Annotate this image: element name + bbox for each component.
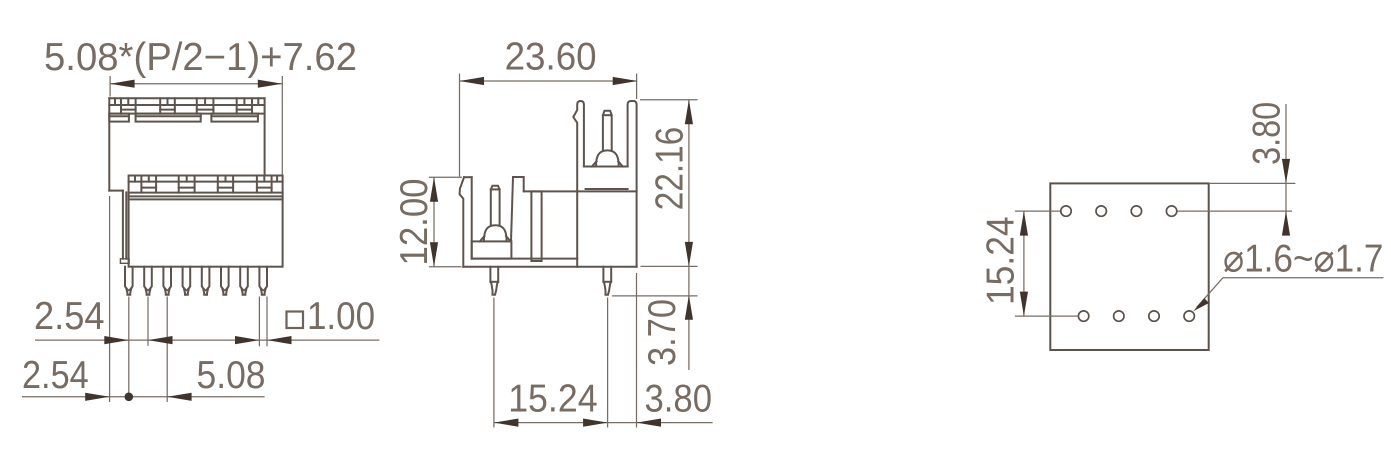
- svg-text:2.54: 2.54: [34, 295, 105, 338]
- svg-text:3.70: 3.70: [641, 299, 684, 366]
- svg-text:⌀1.6~⌀1.7: ⌀1.6~⌀1.7: [1223, 238, 1383, 281]
- svg-text:15.24: 15.24: [508, 378, 597, 421]
- svg-text:15.24: 15.24: [980, 216, 1023, 305]
- svg-text:3.80: 3.80: [1246, 102, 1289, 165]
- svg-text:23.60: 23.60: [505, 36, 597, 79]
- svg-text:12.00: 12.00: [393, 179, 436, 266]
- svg-text:22.16: 22.16: [649, 127, 692, 210]
- svg-text:5.08*(P/2−1)+7.62: 5.08*(P/2−1)+7.62: [44, 36, 357, 79]
- svg-text:2.54: 2.54: [22, 354, 89, 397]
- svg-text:3.80: 3.80: [645, 378, 713, 421]
- svg-text:1.00: 1.00: [307, 295, 375, 338]
- svg-text:5.08: 5.08: [197, 354, 266, 397]
